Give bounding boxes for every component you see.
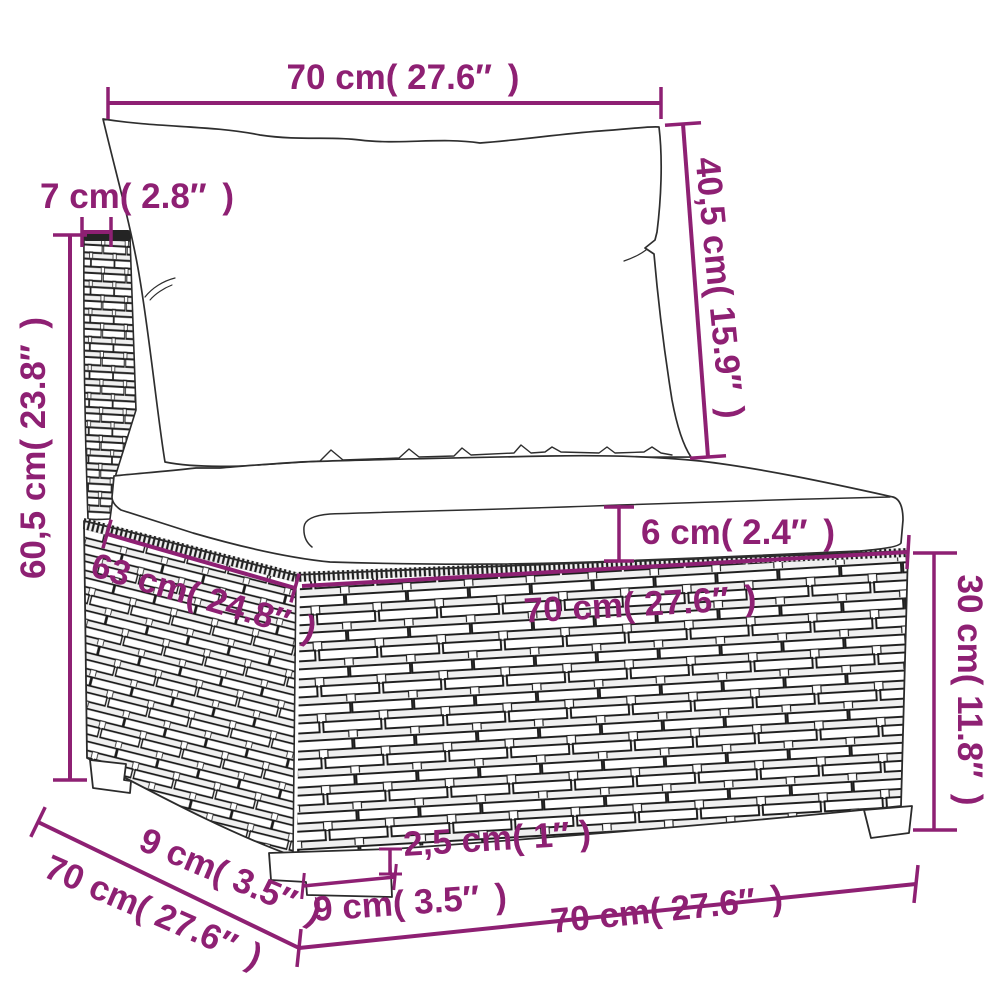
svg-text:60,5 cm( 23.8″ ): 60,5 cm( 23.8″ )	[14, 317, 53, 579]
svg-text:70 cm( 27.6″ ): 70 cm( 27.6″ )	[287, 58, 520, 97]
svg-text:30 cm( 11.8″ ): 30 cm( 11.8″ )	[950, 575, 989, 806]
svg-text:7 cm( 2.8″ ): 7 cm( 2.8″ )	[40, 177, 234, 216]
svg-text:6 cm( 2.4″ ): 6 cm( 2.4″ )	[641, 513, 835, 552]
